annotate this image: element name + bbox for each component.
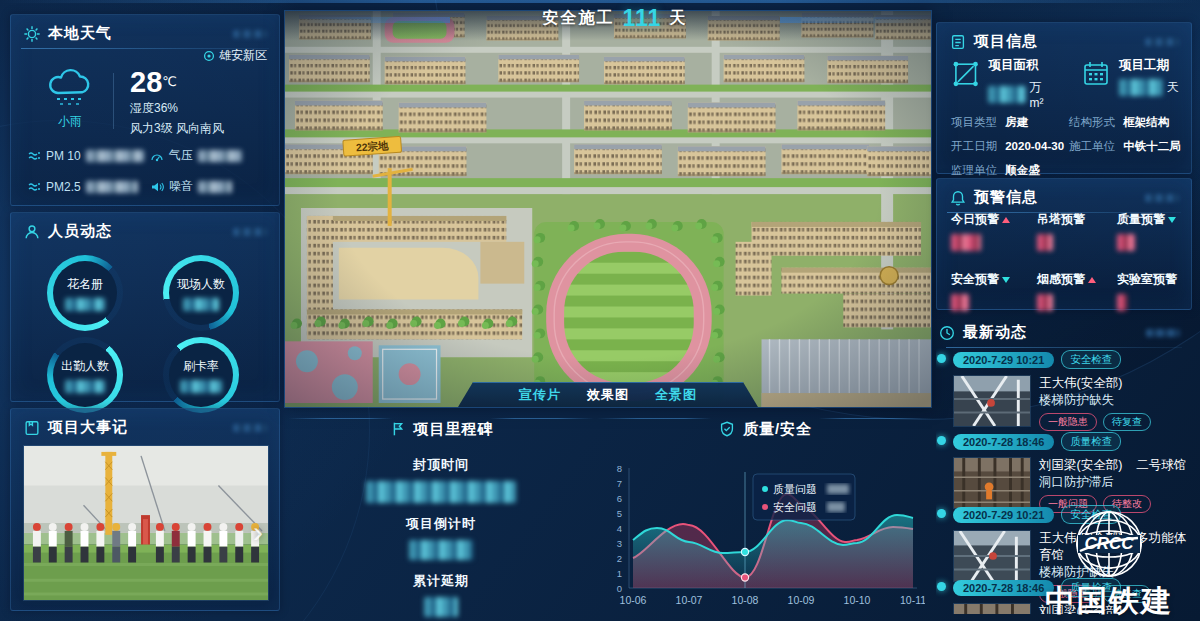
person-icon xyxy=(23,223,41,241)
field-contractor: 施工单位 中铁十二局 xyxy=(1069,139,1187,154)
metric-pm25: PM2.5 xyxy=(27,178,144,195)
blurred-value xyxy=(65,298,105,311)
update-thumbnail xyxy=(953,375,1031,427)
milestone-title: 项目里程碑 xyxy=(414,420,494,439)
safety-days-prefix: 安全施工 xyxy=(543,8,615,29)
field-value: 框架结构 xyxy=(1123,116,1169,128)
header-line xyxy=(946,347,1182,348)
field-label: 结构形式 xyxy=(1069,116,1115,128)
svg-text:8: 8 xyxy=(617,463,622,474)
updates-panel: 最新动态 2020-7-29 10:21 安全检查 xyxy=(936,314,1192,614)
view-mode-switcher: 宣传片 效果图 全景图 xyxy=(458,382,758,407)
svg-text:10-10: 10-10 xyxy=(844,594,871,606)
stat-unit: 万m² xyxy=(1030,79,1055,110)
warning-today: 今日预警 xyxy=(951,211,1037,263)
ring-label: 花名册 xyxy=(67,276,103,293)
events-photo xyxy=(23,445,269,601)
ring-swipe-rate: 刷卡率 xyxy=(163,337,239,413)
hazard-badge: 一般隐患 xyxy=(1039,413,1097,431)
update-type-tag: 安全检查 xyxy=(1061,350,1121,369)
warning-label: 质量预警 xyxy=(1117,211,1165,228)
pm-icon xyxy=(27,149,41,163)
safety-days-suffix: 天 xyxy=(669,8,687,29)
milestone-label: 项目倒计时 xyxy=(288,515,594,533)
project-info-header: 项目信息 xyxy=(937,23,1191,56)
wind-label: 风力3级 风向南风 xyxy=(130,119,224,137)
update-date-badge: 2020-7-28 18:46 xyxy=(953,580,1054,596)
metric-label: PM 10 xyxy=(46,149,81,163)
top-decorative-strip xyxy=(0,0,1200,3)
warning-label: 烟感预警 xyxy=(1037,271,1085,288)
update-type-tag: 质量检查 xyxy=(1061,432,1121,451)
header-decoration xyxy=(233,424,267,432)
events-header: 项目大事记 xyxy=(11,409,279,442)
chart-tooltip: 质量问题 安全问题 xyxy=(753,474,855,520)
document-icon xyxy=(949,33,967,51)
blurred-value xyxy=(1119,79,1163,96)
ring-label: 出勤人数 xyxy=(61,358,109,375)
cloud-rain-icon xyxy=(44,67,96,107)
milestone-header: 项目里程碑 xyxy=(288,414,594,444)
panorama-button[interactable]: 全景图 xyxy=(655,386,697,404)
warning-label: 实验室预警 xyxy=(1117,271,1177,288)
ring-onsite: 现场人数 xyxy=(163,255,239,331)
timeline-dot xyxy=(937,509,946,518)
svg-text:5: 5 xyxy=(617,508,622,519)
svg-text:质量问题: 质量问题 xyxy=(773,483,817,495)
milestone-topping-time: 封顶时间 xyxy=(288,456,594,503)
blurred-value xyxy=(951,294,969,311)
sun-icon xyxy=(23,25,41,43)
temperature-value: 28 xyxy=(130,66,162,98)
weather-title: 本地天气 xyxy=(48,24,112,43)
field-value: 房建 xyxy=(1005,116,1028,128)
personnel-title: 人员动态 xyxy=(48,222,112,241)
pressure-icon xyxy=(150,149,164,163)
ring-roster: 花名册 xyxy=(47,255,123,331)
quality-safety-header: 质量/安全 xyxy=(597,414,933,444)
stat-label: 项目工期 xyxy=(1119,57,1179,74)
blurred-value xyxy=(183,298,219,311)
blurred-value xyxy=(988,86,1025,103)
field-value: 中铁十二局 xyxy=(1123,140,1181,152)
update-item[interactable]: 2020-7-29 10:21 安全检查 王大伟(安全部) 楼梯防护缺失 xyxy=(938,350,1188,431)
update-location: 二号球馆 xyxy=(1136,458,1186,472)
blurred-value xyxy=(424,597,458,617)
update-date-badge: 2020-7-28 18:46 xyxy=(953,434,1054,450)
header-decoration xyxy=(1146,329,1180,337)
rendering-button[interactable]: 效果图 xyxy=(587,386,629,404)
safety-days-header: 安全施工 111 天 xyxy=(300,4,930,32)
humidity-label: 湿度36% xyxy=(130,99,224,117)
field-label: 施工单位 xyxy=(1069,140,1115,152)
trend-down-icon xyxy=(1168,217,1176,223)
metric-label: 噪音 xyxy=(169,178,193,195)
update-date-badge: 2020-7-29 10:21 xyxy=(953,507,1054,523)
svg-text:7: 7 xyxy=(617,478,622,489)
blurred-value xyxy=(180,380,222,393)
ring-attendance: 出勤人数 xyxy=(47,337,123,413)
updates-header: 最新动态 xyxy=(936,314,1192,347)
svg-text:0: 0 xyxy=(617,583,622,594)
blurred-value xyxy=(1117,234,1135,251)
update-type-tag: 安全检查 xyxy=(1061,505,1121,524)
svg-text:安全问题: 安全问题 xyxy=(773,501,817,513)
header-decoration xyxy=(1145,38,1179,46)
field-value: 顺金盛 xyxy=(1005,164,1040,176)
ring-label: 现场人数 xyxy=(177,276,225,293)
stat-duration: 项目工期 天 xyxy=(1081,57,1179,110)
status-badge: 待复查 xyxy=(1103,413,1151,431)
svg-text:10-11: 10-11 xyxy=(900,594,925,606)
update-person: 王大伟(安全部) xyxy=(1039,376,1122,390)
timeline-dot xyxy=(937,436,946,445)
milestone-label: 封顶时间 xyxy=(288,456,594,474)
svg-text:10-09: 10-09 xyxy=(788,594,815,606)
header-wing-right xyxy=(780,17,930,23)
events-panel: 项目大事记 xyxy=(10,408,280,611)
project-stats: 项目面积 万m² 项目工期 天 xyxy=(951,57,1179,110)
warnings-title: 预警信息 xyxy=(974,188,1038,207)
warning-label: 吊塔预警 xyxy=(1037,211,1085,228)
milestone-panel: 项目里程碑 封顶时间 项目倒计时 累计延期 xyxy=(288,414,594,614)
book-icon xyxy=(23,419,41,437)
stat-label: 项目面积 xyxy=(988,57,1055,74)
weather-header: 本地天气 xyxy=(11,15,279,48)
trend-down-icon xyxy=(1002,277,1010,283)
svg-text:2: 2 xyxy=(617,553,622,564)
svg-text:6: 6 xyxy=(617,493,622,504)
update-thumbnail xyxy=(953,530,1031,582)
svg-text:10-07: 10-07 xyxy=(676,594,703,606)
update-thumbnail xyxy=(953,603,1031,614)
shield-icon xyxy=(718,420,736,438)
svg-text:4: 4 xyxy=(617,523,622,534)
header-wing-left xyxy=(300,17,450,23)
milestone-countdown: 项目倒计时 xyxy=(288,515,594,560)
site-3d-view[interactable]: 22宗地 宣传片 效果图 全景图 xyxy=(284,10,932,408)
update-type-tag: 质量检查 xyxy=(1061,578,1121,597)
project-info-panel: 项目信息 项目面积 万m² 项目工期 xyxy=(936,22,1192,174)
pm-icon xyxy=(27,180,41,194)
timeline-dot xyxy=(937,354,946,363)
weather-panel: 本地天气 雄安新区 小雨 28℃ 湿度36% 风力3级 风向南风 xyxy=(10,14,280,206)
blurred-value xyxy=(1117,294,1127,311)
weather-condition: 小雨 xyxy=(27,113,113,130)
bell-icon xyxy=(949,189,967,207)
field-project-type: 项目类型 房建 xyxy=(951,115,1069,130)
stat-unit: 天 xyxy=(1167,79,1179,96)
header-decoration xyxy=(233,228,267,236)
svg-text:1: 1 xyxy=(617,568,622,579)
update-item[interactable]: 2020-7-28 18:46 质量检查 刘国梁(安全部)二号球馆 洞口防护滞后 xyxy=(938,432,1188,513)
svg-text:10-08: 10-08 xyxy=(732,594,759,606)
warning-label: 安全预警 xyxy=(951,271,999,288)
personnel-rings: 花名册 现场人数 出勤人数 刷卡率 xyxy=(11,249,279,399)
flag-icon xyxy=(389,420,407,438)
updates-title: 最新动态 xyxy=(963,323,1027,342)
personnel-header: 人员动态 xyxy=(11,213,279,246)
warnings-header: 预警信息 xyxy=(937,179,1191,212)
blurred-value xyxy=(1037,294,1053,311)
personnel-panel: 人员动态 花名册 现场人数 出勤人数 刷卡率 xyxy=(10,212,280,402)
svg-text:10-06: 10-06 xyxy=(620,594,647,606)
update-person: 王大伟(安全部) xyxy=(1039,531,1122,545)
quality-safety-chart[interactable]: 01 23 45 67 8 10-0610-07 10-0810-09 10-1… xyxy=(605,448,925,610)
location-pin-icon xyxy=(203,50,215,62)
metric-pm10: PM 10 xyxy=(27,147,144,164)
svg-text:3: 3 xyxy=(617,538,622,549)
field-label: 项目类型 xyxy=(951,116,997,128)
blurred-value xyxy=(86,150,144,162)
field-supervisor: 监理单位 顺金盛 xyxy=(951,163,1069,178)
update-person: 刘国梁(安全部) xyxy=(1039,458,1122,472)
field-label: 开工日期 xyxy=(951,140,997,152)
noise-icon xyxy=(150,180,164,194)
field-structure: 结构形式 框架结构 xyxy=(1069,115,1187,130)
area-icon xyxy=(951,59,980,89)
temperature-unit: ℃ xyxy=(162,74,177,89)
update-person: 刘国梁(安全部) xyxy=(1039,604,1122,614)
warning-crane: 吊塔预警 xyxy=(1037,211,1117,263)
blurred-value xyxy=(86,181,138,193)
metric-label: 气压 xyxy=(169,147,193,164)
weather-main: 小雨 28℃ 湿度36% 风力3级 风向南风 xyxy=(27,67,224,137)
divider xyxy=(113,73,114,129)
trend-up-icon xyxy=(1088,277,1096,283)
update-item[interactable]: 2020-7-28 18:46 质量检查 刘国梁(安全部) xyxy=(938,578,1188,614)
blurred-value xyxy=(409,540,473,560)
metric-label: PM2.5 xyxy=(46,180,81,194)
blurred-value xyxy=(1037,234,1053,251)
update-thumbnail xyxy=(953,457,1031,509)
timeline-dot xyxy=(937,582,946,591)
metric-noise: 噪音 xyxy=(150,178,267,195)
warning-quality: 质量预警 xyxy=(1117,211,1183,263)
warnings-panel: 预警信息 今日预警 吊塔预警 质量预警 安全预警 烟感预警 实验室预警 xyxy=(936,178,1192,310)
blurred-value xyxy=(951,234,981,251)
milestone-delay: 累计延期 xyxy=(288,572,594,617)
blurred-value xyxy=(198,181,232,193)
events-title: 项目大事记 xyxy=(48,418,128,437)
update-issue: 楼梯防护缺失 xyxy=(1039,392,1151,409)
field-start-date: 开工日期 2020-04-30 xyxy=(951,139,1069,154)
calendar-icon xyxy=(1081,59,1111,89)
warnings-grid: 今日预警 吊塔预警 质量预警 安全预警 烟感预警 实验室预警 xyxy=(951,211,1183,323)
field-value: 2020-04-30 xyxy=(1005,140,1064,152)
update-date-badge: 2020-7-29 10:21 xyxy=(953,352,1054,368)
metric-pressure: 气压 xyxy=(150,147,267,164)
warning-label: 今日预警 xyxy=(951,211,999,228)
safety-days-count: 111 xyxy=(623,5,662,32)
location-row: 雄安新区 xyxy=(203,47,267,64)
project-fields: 项目类型 房建 结构形式 框架结构 开工日期 2020-04-30 施工单位 中… xyxy=(951,115,1187,178)
carousel-next-arrow[interactable]: › xyxy=(253,517,263,547)
quality-safety-title: 质量/安全 xyxy=(743,420,812,439)
field-label: 监理单位 xyxy=(951,164,997,176)
promo-video-button[interactable]: 宣传片 xyxy=(519,386,561,404)
milestone-label: 累计延期 xyxy=(288,572,594,590)
quality-safety-panel: 质量/安全 01 23 45 67 8 10-0610-07 10-0810-0… xyxy=(597,414,933,614)
blurred-value xyxy=(198,150,242,162)
clock-icon xyxy=(938,324,956,342)
ring-label: 刷卡率 xyxy=(183,358,219,375)
trend-up-icon xyxy=(1002,217,1010,223)
stat-area: 项目面积 万m² xyxy=(951,57,1055,110)
location-label: 雄安新区 xyxy=(219,47,267,64)
header-decoration xyxy=(233,30,267,38)
blurred-value xyxy=(366,481,516,503)
project-info-title: 项目信息 xyxy=(974,32,1038,51)
blurred-value xyxy=(65,380,105,393)
update-issue: 洞口防护滞后 xyxy=(1039,474,1186,491)
header-decoration xyxy=(1145,194,1179,202)
weather-metrics: PM 10 气压 PM2.5 噪音 xyxy=(27,147,267,195)
